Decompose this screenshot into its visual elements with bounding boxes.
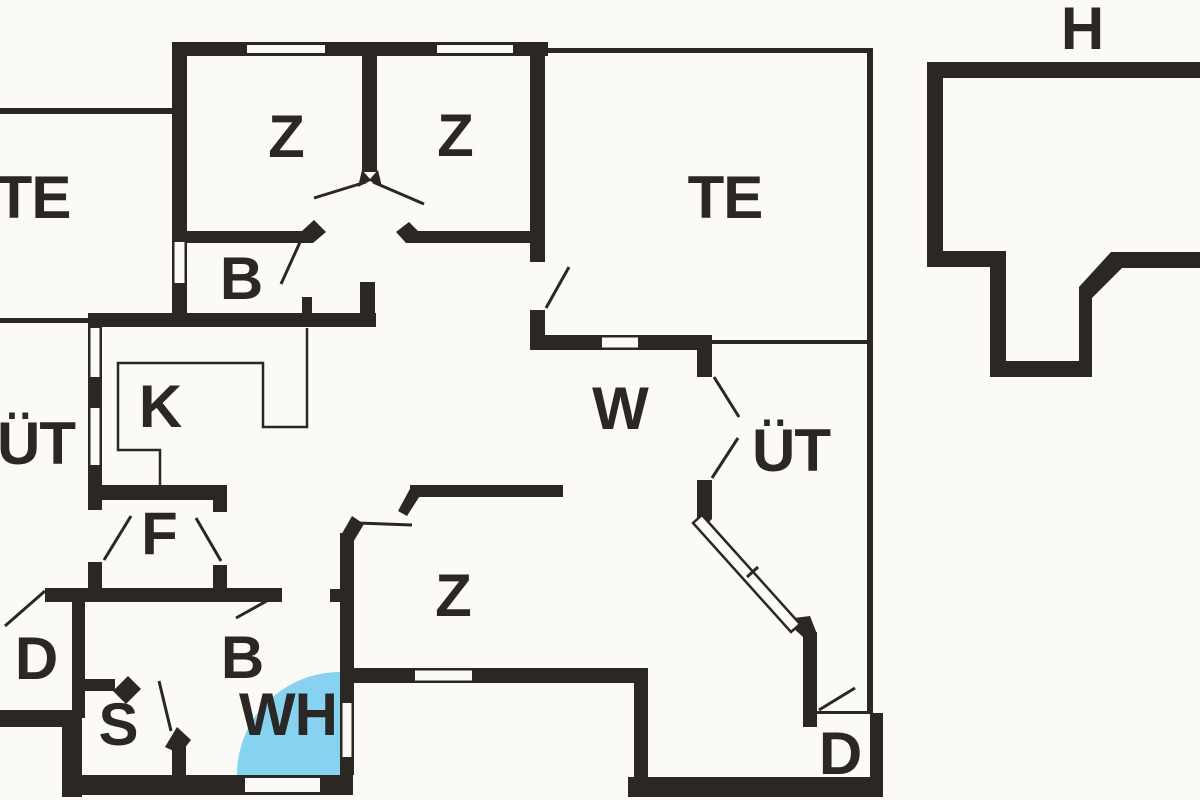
window — [602, 338, 638, 348]
room-d-right: D — [819, 720, 861, 787]
window — [247, 45, 325, 53]
door-leaf — [714, 377, 739, 417]
room-z-top-left: Z — [268, 103, 304, 170]
window — [245, 778, 320, 792]
room-wh: WH — [239, 681, 337, 748]
door-swings — [5, 182, 855, 731]
room-h: H — [1061, 0, 1103, 62]
door-leaf — [373, 182, 424, 204]
window — [415, 671, 472, 681]
door-leaf — [314, 182, 366, 198]
room-s: S — [98, 691, 137, 758]
window — [91, 328, 100, 377]
door-leaf — [357, 523, 412, 525]
door-leaf — [712, 438, 738, 478]
floor-plan-drawing: TE Z Z B TE H ÜT K W ÜT F Z D S B WH D — [0, 0, 1200, 800]
outbuilding-h-outline — [927, 62, 1200, 377]
room-te-left: TE — [0, 164, 70, 231]
door-leaf — [196, 518, 221, 561]
staircase — [693, 515, 800, 632]
room-ut-right: ÜT — [752, 417, 830, 484]
room-k: K — [139, 373, 182, 440]
door-leaf — [104, 516, 131, 560]
room-d-left: D — [15, 625, 57, 692]
window — [343, 703, 352, 757]
room-z-top-right: Z — [437, 102, 473, 169]
door-leaf — [5, 591, 45, 626]
floor-plan: TE Z Z B TE H ÜT K W ÜT F Z D S B WH D — [0, 0, 1200, 800]
window — [91, 408, 100, 465]
room-b-top: B — [220, 245, 262, 312]
room-f: F — [141, 500, 177, 567]
door-leaf — [281, 240, 301, 284]
window — [437, 45, 513, 53]
room-te-right: TE — [688, 164, 763, 231]
door-leaf — [819, 688, 855, 710]
door-leaf — [159, 681, 171, 731]
door-leaf — [546, 267, 569, 308]
window — [175, 242, 185, 283]
room-ut-left: ÜT — [0, 410, 75, 477]
room-w: W — [592, 375, 649, 442]
room-z-bottom: Z — [435, 562, 471, 629]
